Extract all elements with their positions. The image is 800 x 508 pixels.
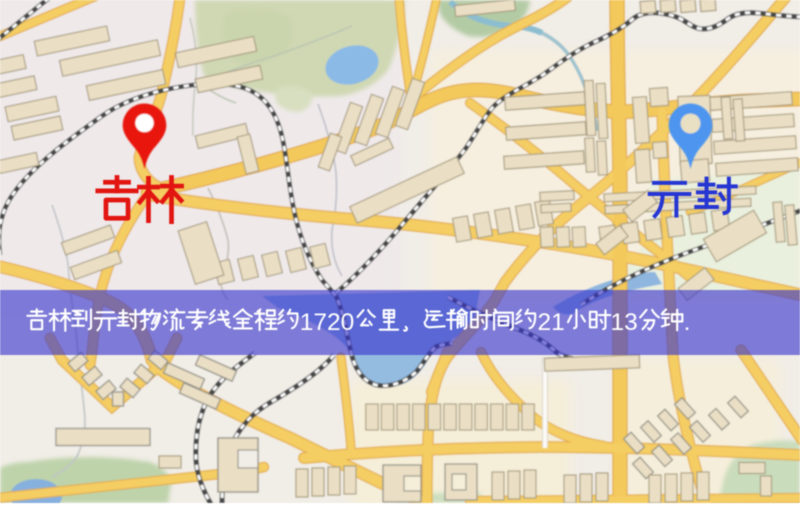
- svg-text:.: .: [684, 309, 691, 336]
- svg-text:21: 21: [538, 309, 565, 336]
- svg-text:13: 13: [611, 309, 638, 336]
- svg-text:1720: 1720: [300, 309, 355, 336]
